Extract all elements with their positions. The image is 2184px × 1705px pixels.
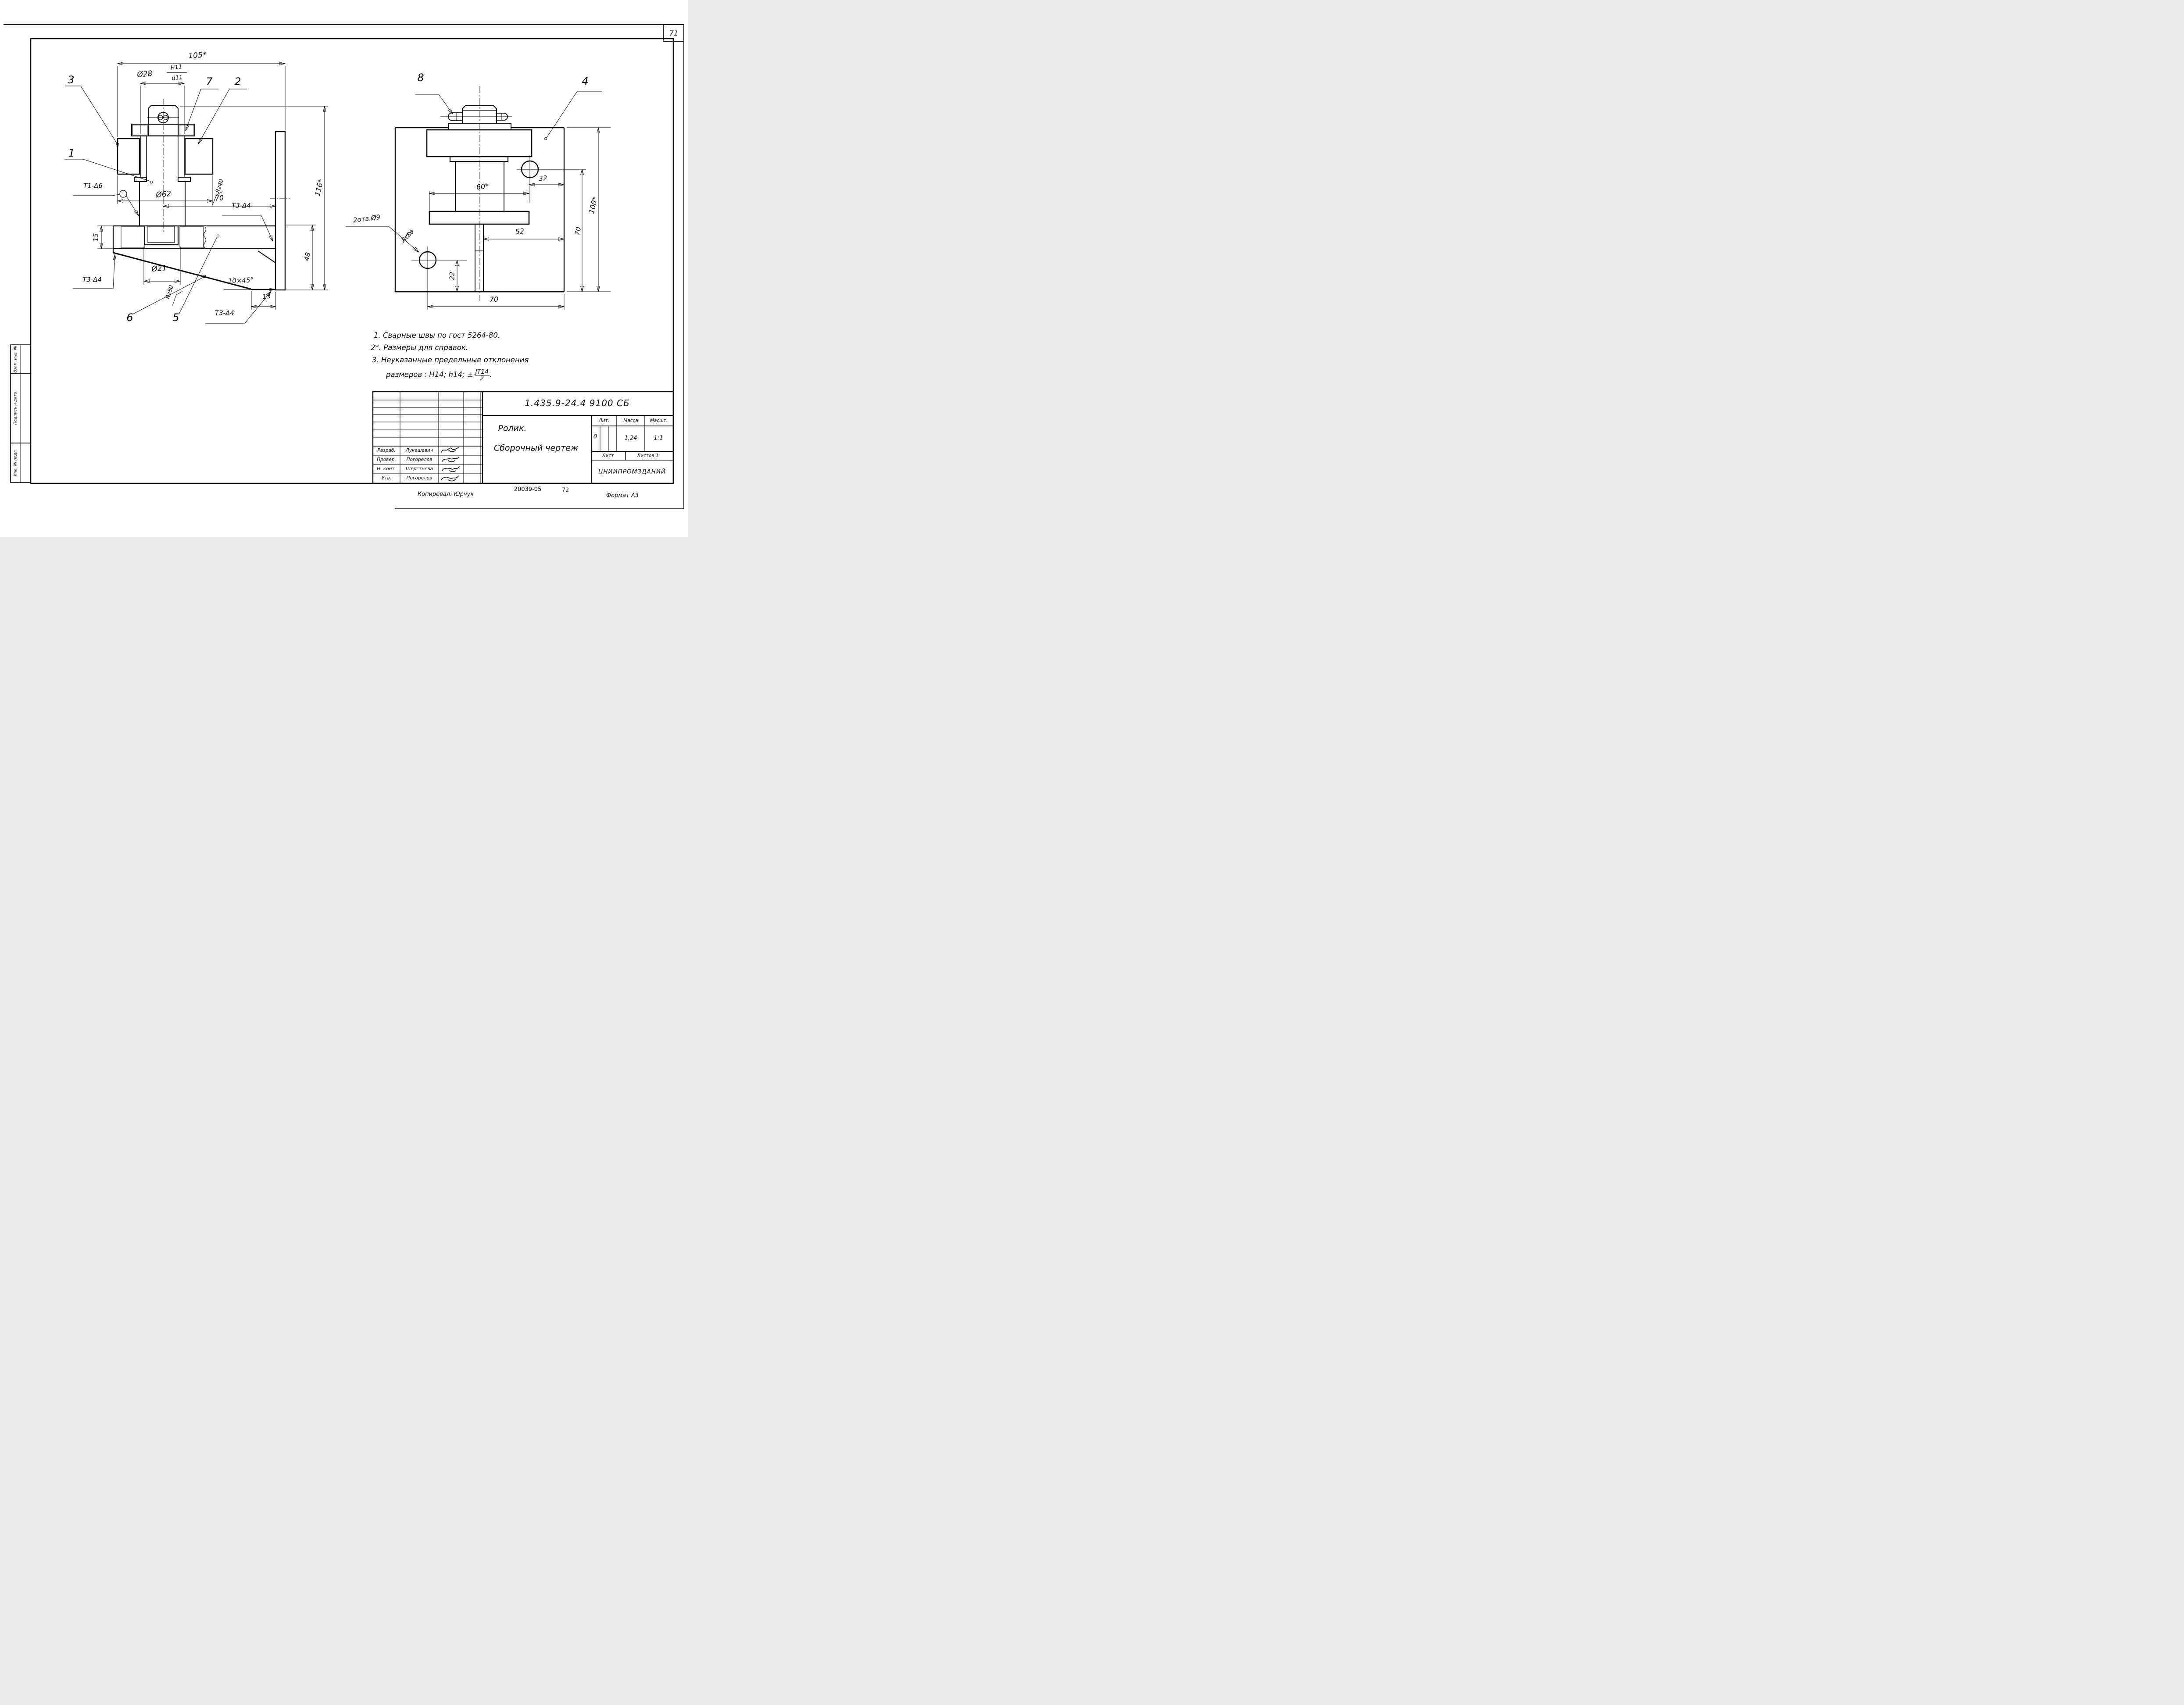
note-3: 3. Неуказанные предельные отклонения bbox=[372, 357, 529, 364]
note-4-fraction: JT142 bbox=[475, 369, 490, 382]
footer-code: 20039-05 bbox=[514, 487, 542, 493]
dim-48: 48 bbox=[304, 252, 312, 261]
footer-format: Формат А3 bbox=[606, 493, 639, 499]
holes-callout: 2отв.Ø9 bbox=[353, 214, 381, 224]
dim-22: 22 bbox=[449, 272, 456, 280]
dim-28-fit-den: d11 bbox=[172, 75, 183, 82]
header-mass: Масса bbox=[623, 418, 638, 423]
dim-70-bottom: 70 bbox=[489, 296, 498, 303]
sig-name-nkont: Шерстнева bbox=[406, 467, 433, 472]
value-mass: 1,24 bbox=[625, 436, 637, 441]
sig-name-razrab: Лукашевич bbox=[406, 448, 433, 453]
sig-role-razrab: Разраб. bbox=[377, 448, 395, 453]
dim-100: 100* bbox=[588, 196, 599, 214]
dim-28: Ø28 bbox=[137, 70, 153, 79]
footer-copied: Копировал: Юрчук bbox=[418, 492, 474, 497]
note-2: 2*. Размеры для справок. bbox=[371, 344, 468, 352]
sidebar-label-podpis: Подпись и дата bbox=[14, 392, 18, 425]
surface-rz80-left: Rz80 bbox=[165, 285, 175, 300]
value-lit: 0 bbox=[593, 434, 597, 440]
note-1: 1. Сварные швы по гост 5264-80. bbox=[374, 332, 500, 340]
part-label-6: 6 bbox=[126, 312, 133, 323]
dim-21: Ø21 bbox=[151, 265, 167, 273]
dim-105: 105* bbox=[188, 51, 207, 60]
weld-t3-bottom: Т3-Δ4 bbox=[215, 310, 234, 317]
text-layer: 71 Взам. инв. № Подпись и дата Инв. № по… bbox=[0, 0, 688, 537]
sidebar-label-inv: Инв. № подл. bbox=[14, 449, 18, 476]
dim-116: 116* bbox=[314, 179, 325, 197]
weld-t3-upper: Т3-Δ4 bbox=[232, 203, 251, 209]
dim-32: 32 bbox=[539, 175, 547, 182]
part-label-5: 5 bbox=[172, 312, 179, 323]
dim-chamfer: 10×45° bbox=[228, 277, 254, 285]
header-scale: Масшт. bbox=[650, 418, 668, 423]
footer-ref: 72 bbox=[562, 488, 569, 493]
dim-60: 60* bbox=[476, 183, 489, 191]
note-4-period: . bbox=[490, 370, 492, 379]
header-sheets: Листов 1 bbox=[637, 454, 658, 458]
sidebar-label-vzam: Взам. инв. № bbox=[14, 346, 18, 372]
drawing-title-line2: Сборочный чертеж bbox=[494, 444, 578, 453]
part-label-2: 2 bbox=[234, 76, 241, 87]
sig-role-utv: Утв. bbox=[382, 476, 391, 481]
dim-70-left: 70 bbox=[214, 194, 224, 202]
page-number: 71 bbox=[669, 30, 678, 37]
part-label-3: 3 bbox=[68, 75, 74, 85]
weld-t1: Т1-Δ6 bbox=[83, 183, 103, 189]
part-label-7: 7 bbox=[206, 76, 212, 87]
weld-t3-left: Т3-Δ4 bbox=[82, 277, 102, 283]
surface-rz40: Rz40 bbox=[215, 179, 225, 194]
drawing-title-line1: Ролик. bbox=[498, 425, 526, 433]
dim-15-bottom: 15 bbox=[262, 293, 272, 300]
doc-number: 1.435.9-24.4 9100 СБ bbox=[525, 399, 629, 407]
header-sheet: Лист bbox=[602, 454, 614, 458]
drawing-sheet: 71 Взам. инв. № Подпись и дата Инв. № по… bbox=[0, 0, 688, 537]
note-4-text: размеров : Н14; h14; ± bbox=[386, 370, 473, 379]
value-scale: 1:1 bbox=[654, 436, 663, 441]
part-label-1: 1 bbox=[68, 148, 75, 158]
header-lit: Лит. bbox=[599, 418, 609, 423]
note-4: размеров : Н14; h14; ±JT142. bbox=[386, 369, 492, 382]
sig-name-utv: Погорелов bbox=[407, 476, 433, 481]
org-name: ЦНИИПРОМЗДАНИЙ bbox=[598, 469, 666, 475]
sig-role-nkont: Н. конт. bbox=[377, 467, 396, 472]
part-label-8: 8 bbox=[417, 72, 424, 83]
dim-70-right: 70 bbox=[574, 226, 583, 236]
dim-15-left: 15 bbox=[93, 233, 100, 241]
part-label-4: 4 bbox=[582, 76, 588, 86]
sig-name-prover: Погорелов bbox=[407, 458, 433, 462]
surface-rz80-right: Rz80 bbox=[401, 229, 415, 243]
sig-role-prover: Провер. bbox=[377, 458, 396, 462]
dim-52: 52 bbox=[515, 228, 525, 236]
dim-28-fit-num: H11 bbox=[170, 64, 182, 71]
dim-62: Ø62 bbox=[156, 190, 172, 199]
